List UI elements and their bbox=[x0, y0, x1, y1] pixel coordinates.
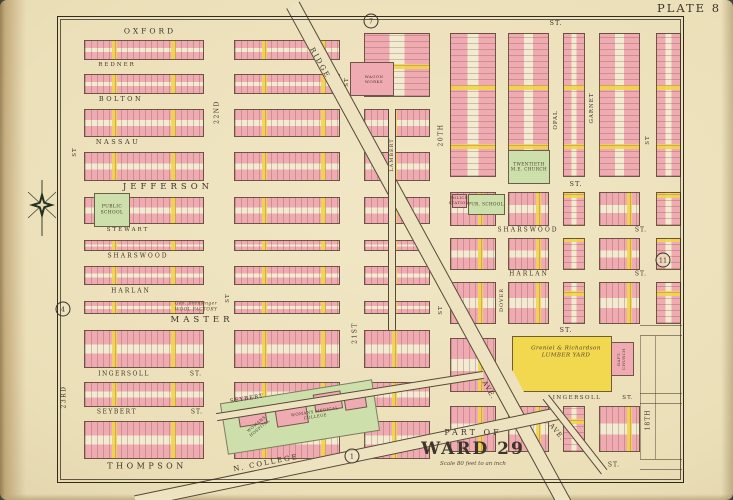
marker-11: 11 bbox=[656, 253, 671, 268]
compass-rose-icon bbox=[22, 178, 62, 238]
plate-number: PLATE 8 bbox=[650, 1, 728, 15]
title-scale-note: Scale 80 feet to an inch bbox=[398, 461, 548, 467]
atlas-page: OXFORDREDNERBOLTONNASSAUJEFFERSONSTEWART… bbox=[0, 0, 733, 500]
marker-7: 7 bbox=[364, 14, 379, 29]
marker-4: 4 bbox=[56, 302, 71, 317]
title-part-of: PART OF bbox=[398, 428, 548, 437]
plate-markers-layer: 71141 bbox=[0, 0, 733, 500]
marker-1: 1 bbox=[345, 449, 360, 464]
title-ward-number: WARD 29 bbox=[398, 439, 548, 459]
map-title-block: PART OF WARD 29 Scale 80 feet to an inch bbox=[398, 428, 548, 467]
